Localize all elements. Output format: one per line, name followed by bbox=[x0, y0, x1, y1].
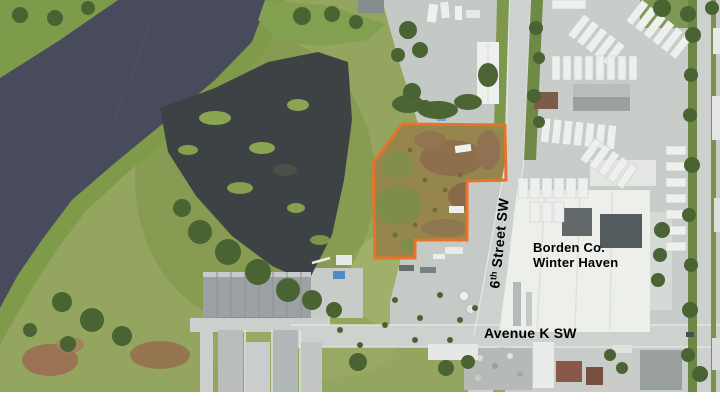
borden-plant-label: Borden Co. Winter Haven bbox=[533, 240, 618, 270]
small-building bbox=[336, 255, 352, 265]
storage-tank bbox=[459, 291, 469, 301]
bottom-white-margin bbox=[0, 392, 720, 405]
gable-roof-building bbox=[573, 84, 630, 111]
slide-canvas: 6th Street SW Borden Co. Winter Haven Av… bbox=[0, 0, 720, 405]
avenue-k-label: Avenue K SW bbox=[484, 325, 577, 341]
aerial-photo bbox=[0, 0, 720, 392]
road-verge bbox=[711, 0, 716, 392]
warehouse-drive bbox=[200, 328, 213, 392]
pool bbox=[333, 271, 345, 279]
plant-label-line1: Borden Co. bbox=[533, 240, 618, 255]
road-east-street bbox=[697, 0, 711, 392]
plant-label-line2: Winter Haven bbox=[533, 255, 618, 270]
street-ordinal: th bbox=[488, 271, 499, 280]
street-number: 6 bbox=[486, 279, 503, 289]
